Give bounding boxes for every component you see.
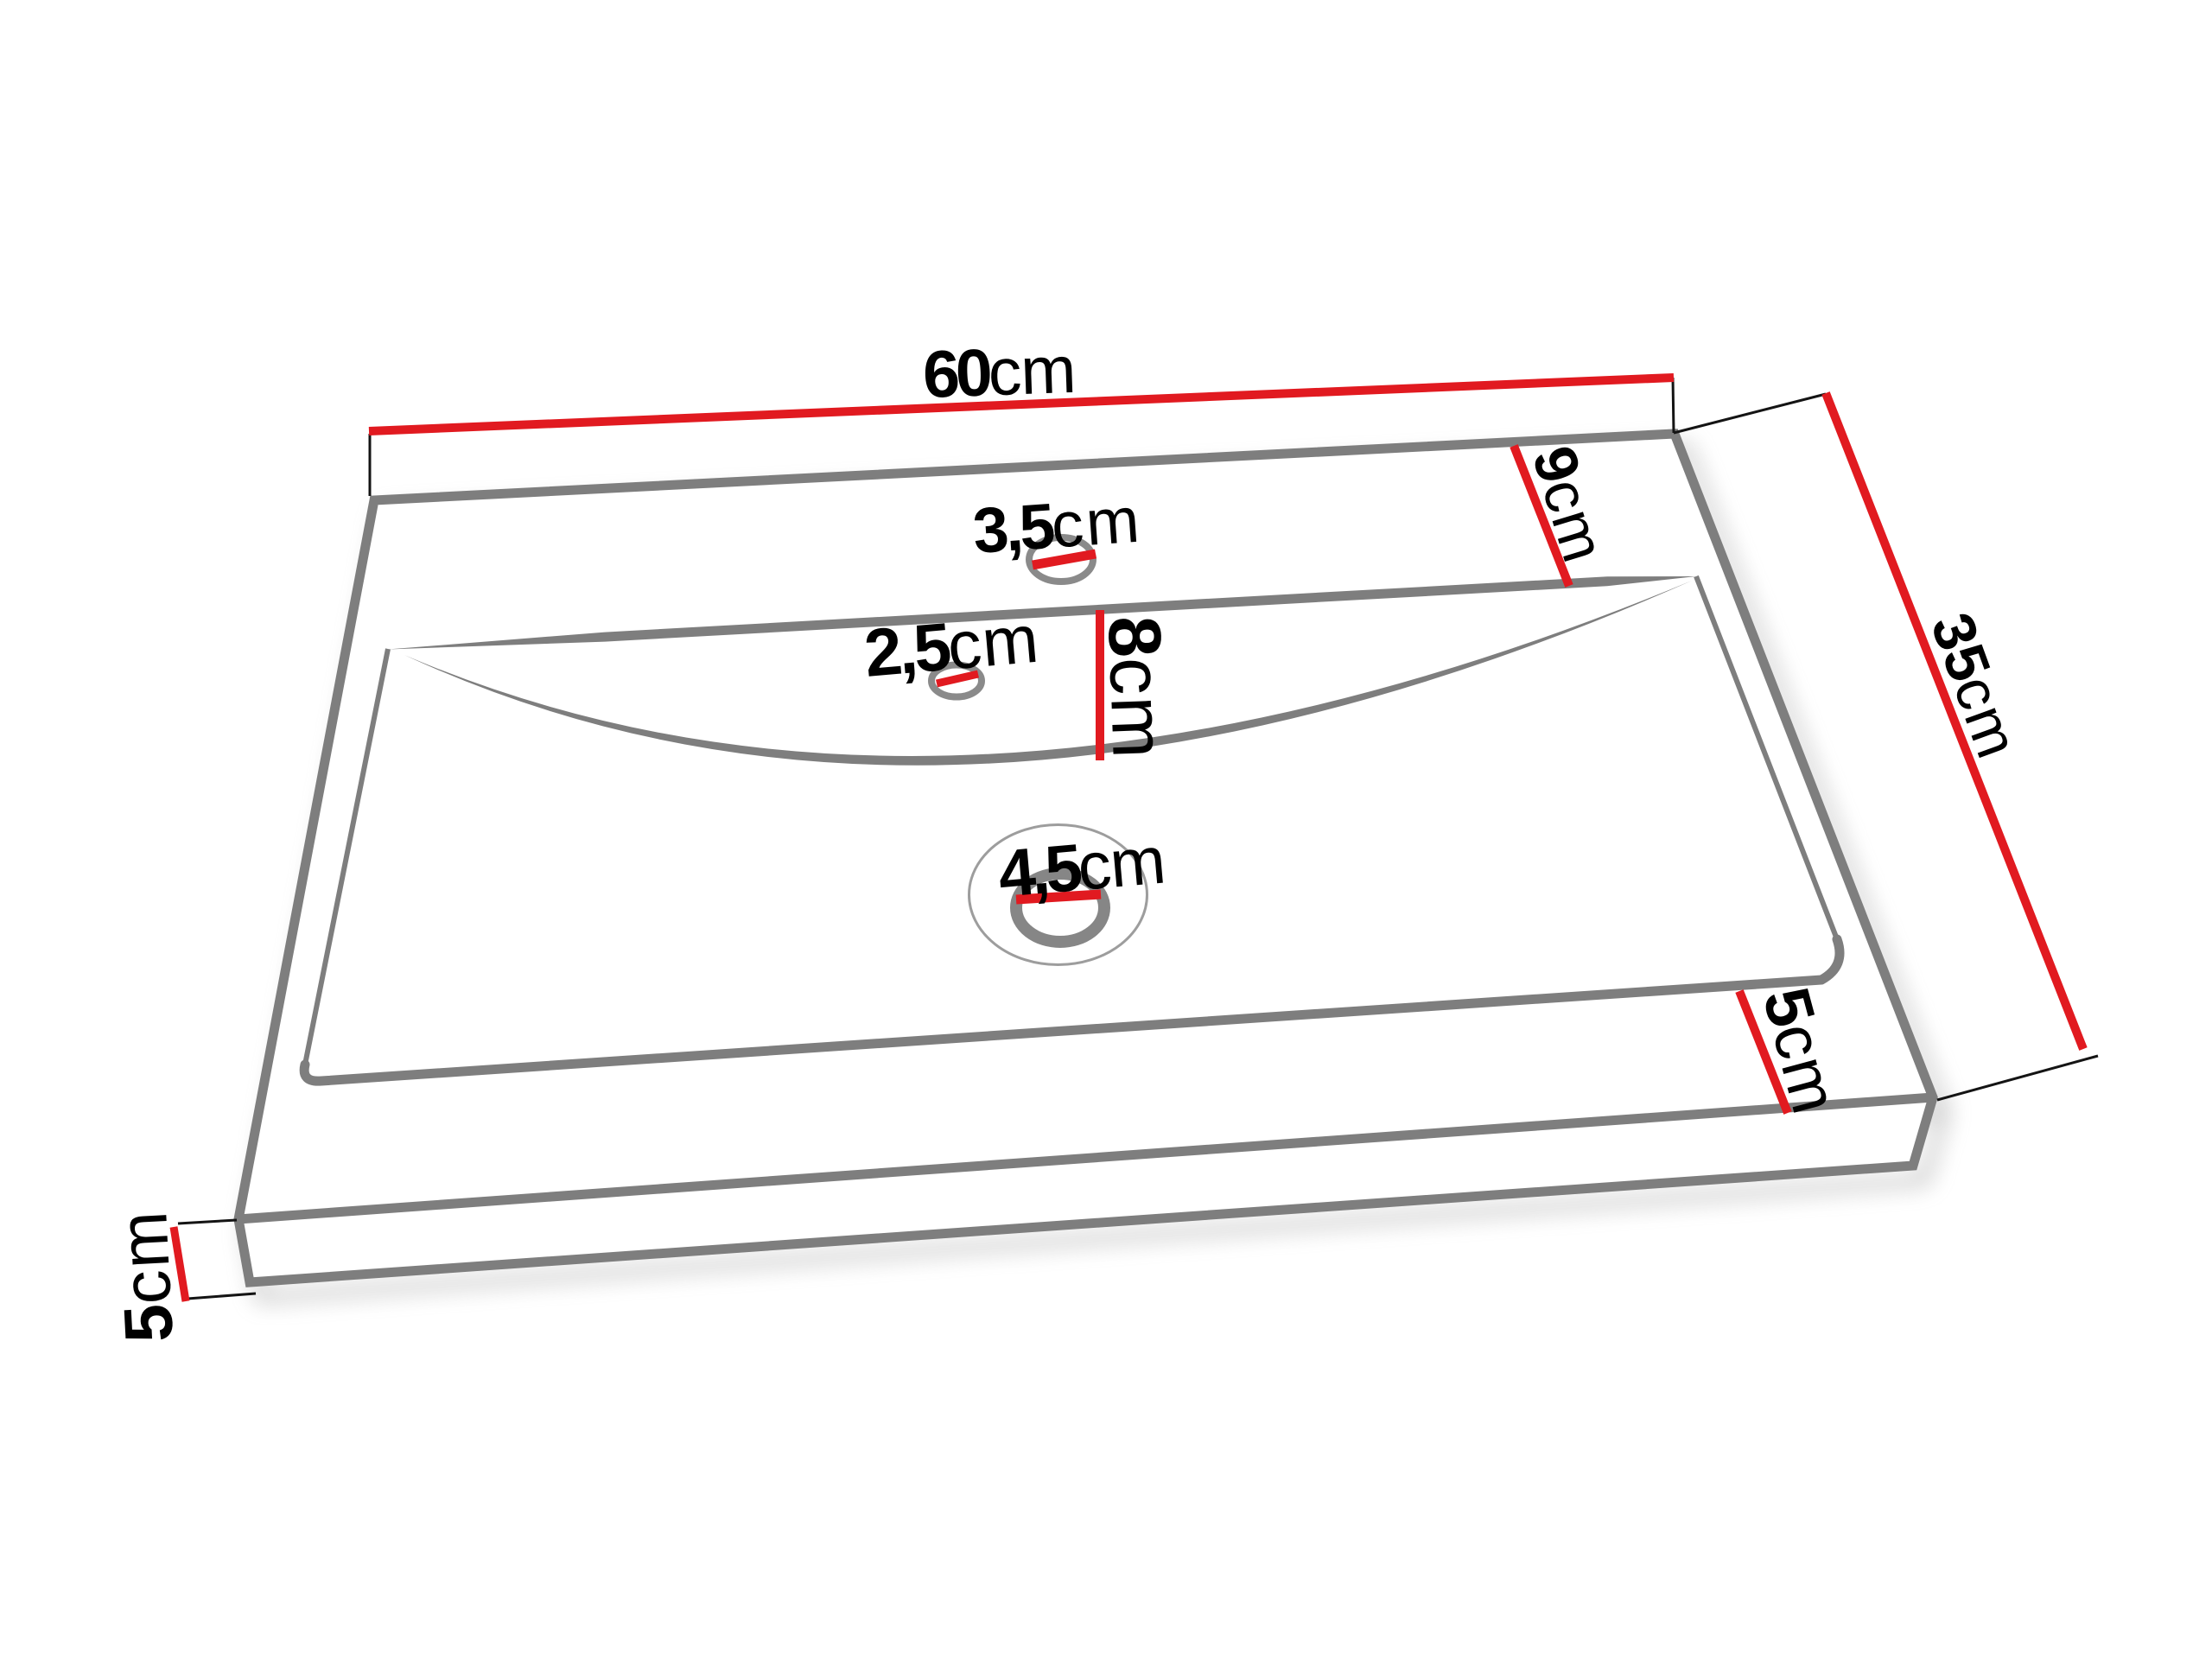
svg-text:3,5cm: 3,5cm: [970, 484, 1144, 567]
svg-text:5cm: 5cm: [104, 1208, 188, 1344]
svg-text:60cm: 60cm: [922, 333, 1077, 412]
svg-text:4,5cm: 4,5cm: [995, 823, 1167, 911]
svg-text:8cm: 8cm: [1092, 614, 1180, 761]
svg-text:35cm: 35cm: [1918, 605, 2031, 768]
svg-text:2,5cm: 2,5cm: [861, 601, 1042, 691]
